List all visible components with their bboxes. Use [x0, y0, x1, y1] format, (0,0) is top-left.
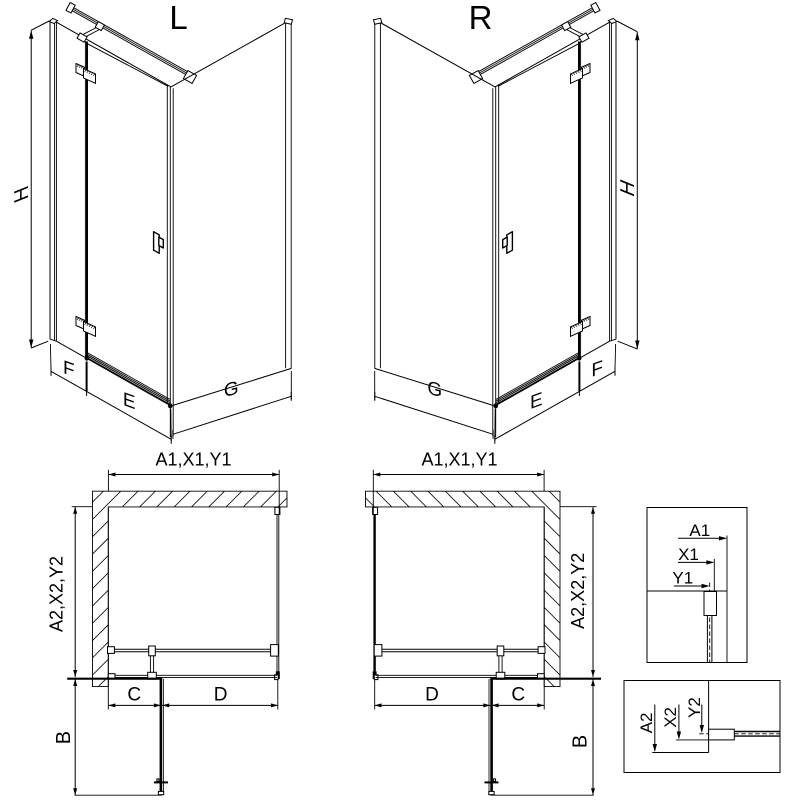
svg-text:G: G [427, 378, 442, 402]
svg-text:Y1: Y1 [672, 569, 693, 588]
svg-text:R: R [469, 0, 493, 36]
svg-text:A2,X2,Y2: A2,X2,Y2 [47, 556, 67, 632]
svg-text:D: D [425, 684, 439, 705]
svg-text:F: F [591, 356, 603, 382]
svg-text:L: L [169, 0, 187, 36]
svg-text:A2: A2 [637, 713, 656, 734]
svg-text:Y2: Y2 [685, 697, 704, 718]
svg-text:A1,X1,Y1: A1,X1,Y1 [421, 450, 497, 470]
svg-text:A1,X1,Y1: A1,X1,Y1 [155, 450, 231, 470]
svg-text:B: B [53, 731, 75, 744]
svg-text:X1: X1 [678, 545, 699, 564]
svg-text:X2: X2 [661, 707, 680, 728]
svg-text:A1: A1 [689, 521, 710, 540]
svg-text:F: F [63, 356, 75, 382]
svg-text:C: C [511, 684, 525, 705]
svg-text:B: B [570, 735, 592, 748]
svg-text:G: G [224, 378, 239, 402]
svg-text:C: C [127, 684, 141, 705]
svg-text:A2,X2,Y2: A2,X2,Y2 [568, 553, 588, 629]
svg-text:D: D [214, 684, 228, 705]
